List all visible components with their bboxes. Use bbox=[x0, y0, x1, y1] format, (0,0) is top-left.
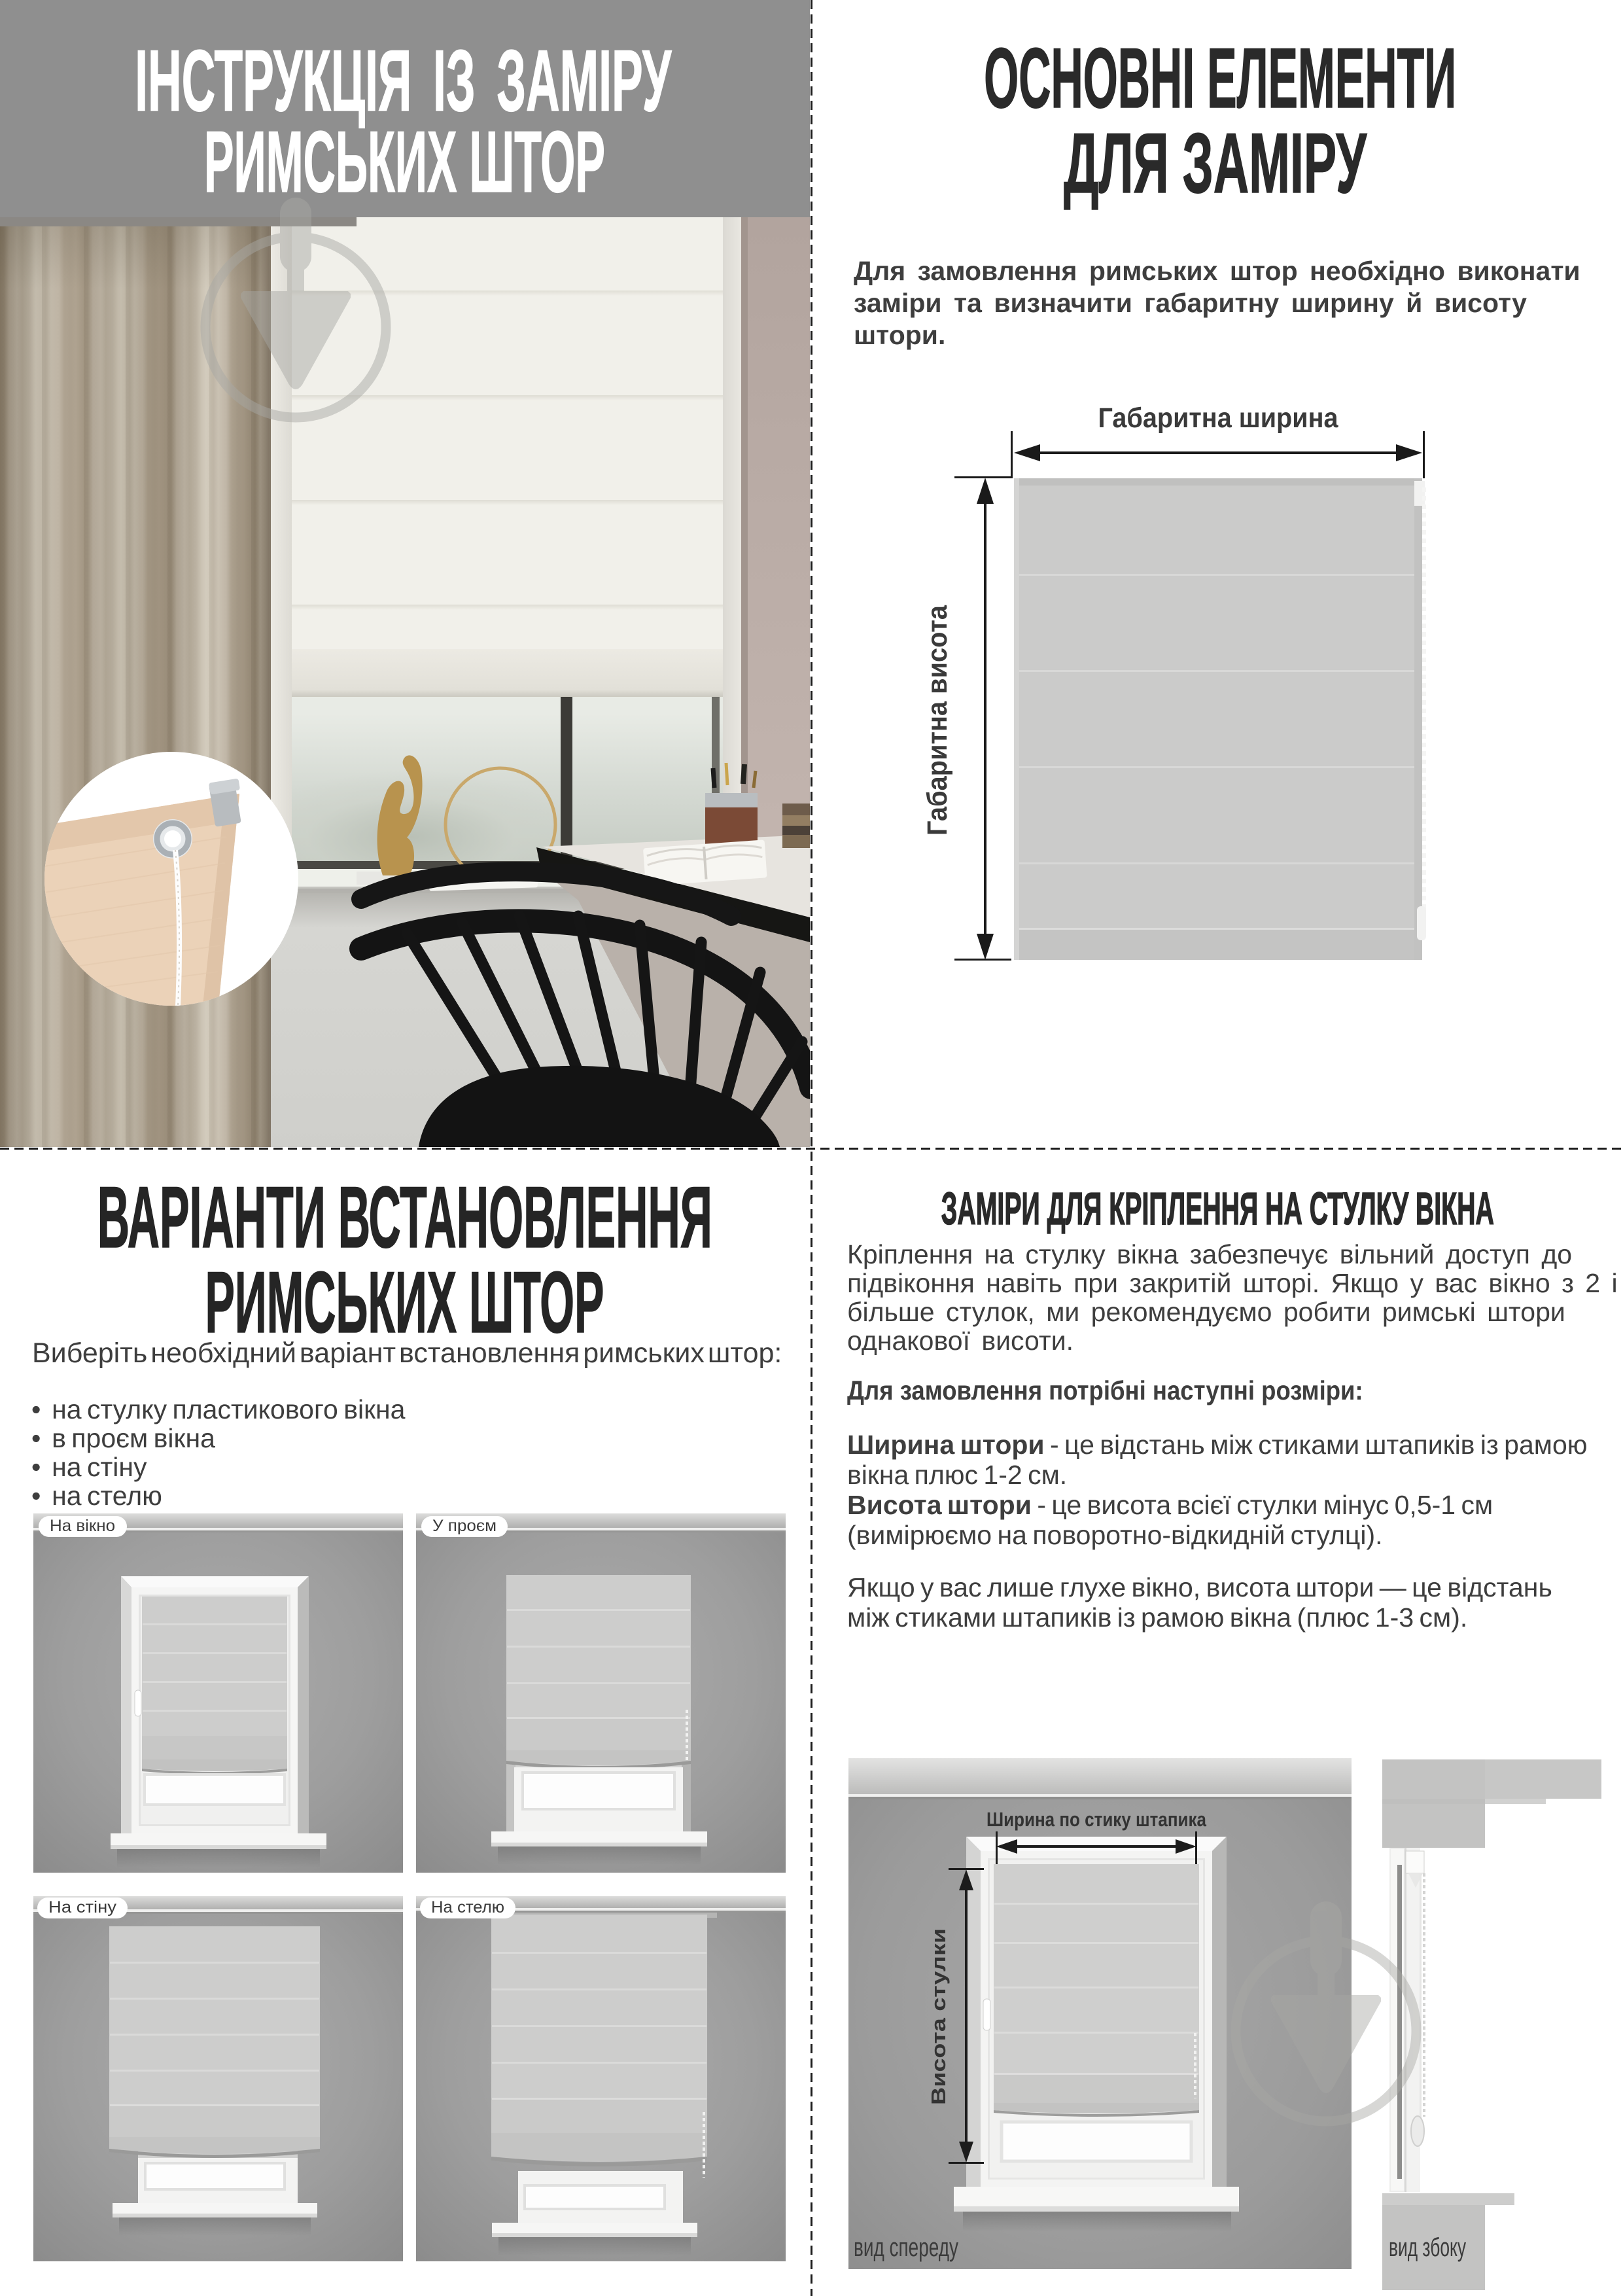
svg-text:Ширина по стику штапика: Ширина по стику штапика bbox=[986, 1808, 1207, 1831]
svg-text:вид збоку: вид збоку bbox=[1389, 2233, 1466, 2262]
svg-text:Габаритна ширина: Габаритна ширина bbox=[1098, 402, 1339, 434]
svg-text:На стелю: На стелю bbox=[431, 1898, 504, 1916]
svg-text:На вікно: На вікно bbox=[50, 1517, 115, 1535]
svg-text:Висота стулки: Висота стулки bbox=[927, 1928, 950, 2105]
svg-text:вид спереду: вид спереду bbox=[854, 2233, 958, 2262]
svg-text:У проєм: У проєм bbox=[432, 1517, 497, 1535]
svg-text:На стіну: На стіну bbox=[48, 1898, 117, 1916]
svg-text:Габаритна висота: Габаритна висота bbox=[922, 605, 953, 836]
